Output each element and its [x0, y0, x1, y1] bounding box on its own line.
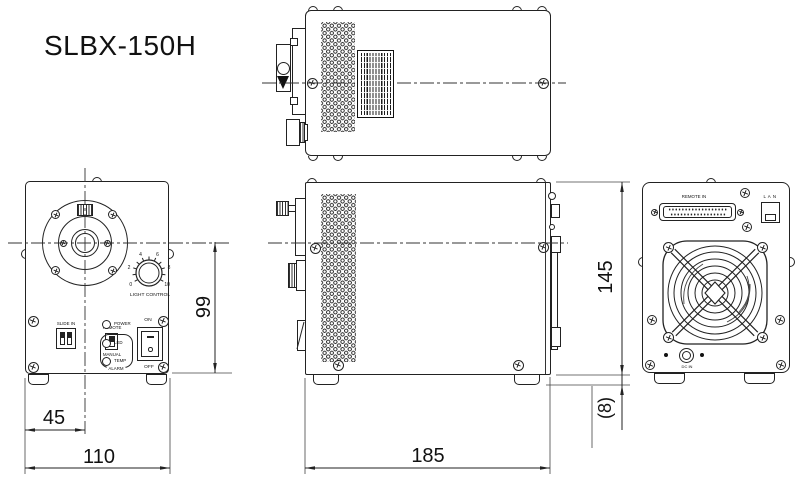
light-exit-bore [75, 233, 95, 253]
power-switch-rocker [141, 331, 159, 357]
screw-icon [310, 243, 321, 254]
knob-scale-4: 4 [139, 252, 142, 258]
screw-icon [651, 209, 658, 216]
knob-scale-8: 8 [168, 265, 171, 271]
drawing-sheet: SLBX-150H [0, 0, 800, 504]
foot [28, 374, 49, 385]
screw-icon [28, 316, 39, 327]
knob-scale-10: 10 [164, 282, 170, 288]
foot [744, 373, 775, 384]
screw-icon [538, 242, 549, 253]
dip-switch-nub [68, 333, 71, 338]
screw-icon [158, 316, 169, 327]
screw-icon [158, 362, 169, 373]
on-label: ON [144, 318, 151, 323]
rear-bump [548, 192, 556, 200]
screw-icon [757, 242, 768, 253]
screw-icon [538, 78, 549, 89]
dim-8: (8) [596, 397, 614, 419]
power-lamp [102, 320, 111, 329]
switch-top-detail [304, 124, 308, 141]
power-switch-side [297, 320, 306, 351]
knob-side [288, 263, 297, 288]
thumbscrew [77, 204, 93, 216]
vent-holes [321, 194, 356, 362]
knob-scale-6: 6 [156, 252, 159, 258]
screw-icon [776, 360, 786, 370]
dim-145: 145 [596, 260, 616, 293]
switch-off-mark [148, 347, 153, 352]
dim-185: 185 [411, 446, 444, 466]
screw-icon [663, 332, 674, 343]
foot-bump [537, 156, 547, 161]
warning-triangle-icon [277, 76, 289, 89]
foot-bump [512, 156, 522, 161]
knob-scale-0: 0 [129, 282, 132, 288]
dim-45: 45 [43, 408, 65, 428]
off-label: OFF [144, 364, 154, 369]
screw-icon [757, 332, 768, 343]
dip-switch-label: SLIDE IN [57, 322, 75, 326]
dim-110: 110 [83, 447, 115, 467]
rear-panel-seam [545, 183, 546, 374]
light-control-label: LIGHT CONTROL [130, 293, 170, 298]
alarm-label: ALARM [107, 366, 125, 370]
power-lamp-label: POWER [114, 322, 131, 326]
screw-icon [108, 266, 117, 275]
screw-icon [104, 240, 111, 247]
mount-tab [290, 97, 298, 105]
screw-icon [108, 210, 117, 219]
dc-inlet-pin [682, 351, 691, 360]
screw-icon [645, 360, 655, 370]
screw-icon [51, 210, 60, 219]
foot [654, 373, 685, 384]
dip-switch-nub [61, 333, 64, 338]
screw-icon [663, 242, 674, 253]
connector-side [551, 327, 561, 347]
switch-on-mark [147, 336, 154, 338]
screw-icon [60, 240, 67, 247]
screw-icon [742, 222, 752, 232]
screw-icon [51, 266, 60, 275]
led-lamp-label: LED [114, 341, 123, 345]
lens-flange-side [295, 198, 306, 256]
lan-port-tab [765, 214, 776, 221]
foot-bump [333, 156, 343, 161]
vent-holes [321, 22, 355, 132]
knob-scale-2: 2 [128, 265, 131, 271]
pin-row [670, 213, 726, 216]
fan-guard [659, 236, 771, 348]
screw-icon [740, 188, 750, 198]
dim-99: 99 [194, 296, 214, 318]
screw-icon [737, 209, 744, 216]
spec-label [357, 50, 394, 118]
lan-label: L A N [763, 195, 776, 199]
connector-dot [700, 353, 704, 357]
switch-top [286, 119, 300, 146]
drawing-title: SLBX-150H [44, 30, 196, 62]
remote-in-label: REMOTE IN [682, 195, 706, 199]
screw-icon [775, 315, 785, 325]
foot [146, 374, 167, 385]
pin-row [668, 208, 728, 211]
screw-icon [513, 360, 524, 371]
dip-switch [56, 328, 76, 349]
screw-icon [647, 315, 657, 325]
foot [514, 374, 540, 385]
foot [313, 374, 339, 385]
screw-icon [28, 362, 39, 373]
thumbscrew-top [277, 62, 290, 75]
dc-in-label: DC IN [682, 365, 693, 369]
temp-lamp-label: TEMP [114, 359, 126, 363]
remote-connector-side [551, 236, 561, 253]
knob-hub-side [296, 260, 306, 291]
screw-icon [307, 78, 318, 89]
screw-icon [333, 360, 344, 371]
connector-dot [664, 353, 668, 357]
side-bump [790, 257, 795, 267]
foot-bump [308, 156, 318, 161]
led-lamp [102, 339, 111, 348]
rear-block [551, 204, 560, 218]
rear-bump [549, 224, 555, 230]
temp-lamp [102, 357, 111, 366]
mount-tab [290, 38, 298, 46]
thumbscrew-stem [288, 205, 296, 212]
